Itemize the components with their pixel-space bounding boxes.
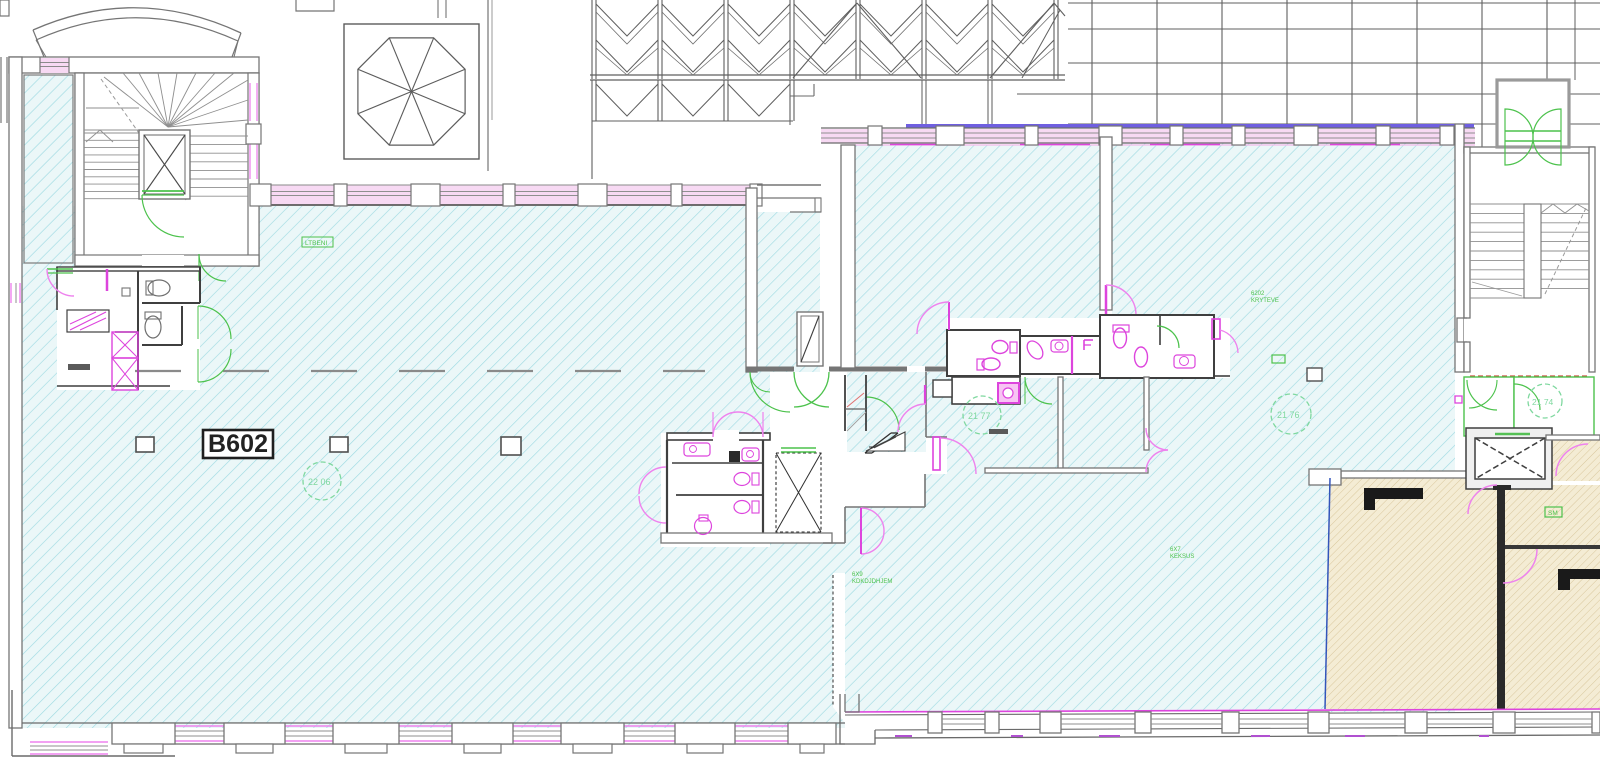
svg-text:6X9: 6X9: [852, 572, 863, 578]
svg-text:KDKDJDHJEM: KDKDJDHJEM: [852, 579, 892, 585]
svg-text:6202: 6202: [1251, 291, 1265, 297]
svg-text:21 77: 21 77: [968, 411, 991, 421]
svg-text:LTBENI: LTBENI: [305, 240, 327, 247]
svg-text:SM: SM: [1548, 510, 1558, 517]
svg-text:21 74: 21 74: [1532, 397, 1554, 407]
svg-text:22 06: 22 06: [308, 477, 331, 487]
svg-text:B602: B602: [208, 430, 268, 458]
svg-text:KEKSUS: KEKSUS: [1170, 554, 1194, 560]
svg-text:KRYTEVE: KRYTEVE: [1251, 298, 1279, 304]
svg-text:21 76: 21 76: [1277, 410, 1300, 420]
svg-text:6X7: 6X7: [1170, 547, 1181, 553]
